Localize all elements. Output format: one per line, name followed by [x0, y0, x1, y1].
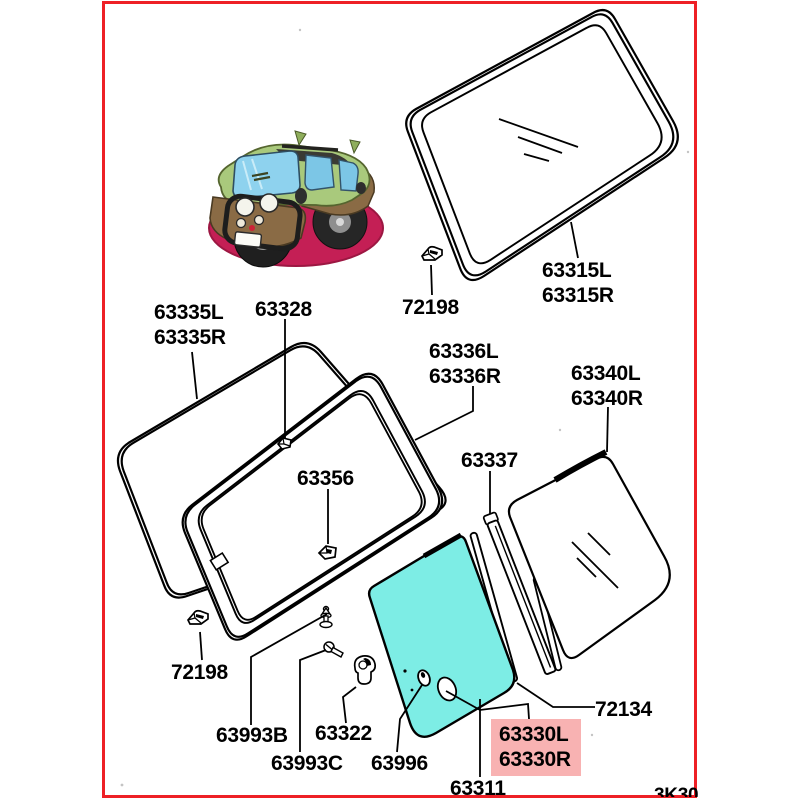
part-label-63337[interactable]: 63337 [461, 448, 518, 473]
part-label-63993c[interactable]: 63993C [271, 751, 343, 776]
glass-63311-highlighted [369, 535, 514, 737]
part-label-72198-bottom[interactable]: 72198 [171, 660, 228, 685]
part-label-63335[interactable]: 63335L 63335R [154, 300, 226, 350]
headlight [260, 194, 278, 212]
car-illustration [209, 131, 383, 267]
part-label-63340[interactable]: 63340L 63340R [571, 361, 643, 411]
part-label-72198-top[interactable]: 72198 [402, 295, 459, 320]
part-label-63336[interactable]: 63336L 63336R [429, 339, 501, 389]
license-plate [234, 232, 261, 248]
page-code-stamp: 3K30 [654, 786, 700, 797]
parts-diagram-canvas [0, 0, 800, 800]
windshield [233, 151, 300, 198]
part-label-63996[interactable]: 63996 [371, 751, 428, 776]
part-label-63356[interactable]: 63356 [297, 466, 354, 491]
grommet-63322-icon [355, 656, 376, 684]
brand-badge [249, 225, 255, 231]
part-label-63328[interactable]: 63328 [255, 297, 312, 322]
clip-72198-top-icon [422, 247, 442, 260]
part-label-63315[interactable]: 63315L 63315R [542, 258, 614, 308]
part-label-63993b[interactable]: 63993B [216, 723, 288, 748]
clip-72198-bottom-icon [188, 611, 208, 624]
quarter-glass-63315 [406, 10, 678, 280]
side-mirror [295, 188, 307, 204]
screw-63993c-icon [324, 642, 343, 657]
part-label-63311[interactable]: 63311 [450, 776, 506, 801]
headlight [236, 198, 254, 216]
part-label-63330-selected[interactable]: 63330L 63330R [499, 722, 571, 772]
part-label-72134[interactable]: 72134 [595, 697, 652, 722]
part-label-63322[interactable]: 63322 [315, 721, 372, 746]
